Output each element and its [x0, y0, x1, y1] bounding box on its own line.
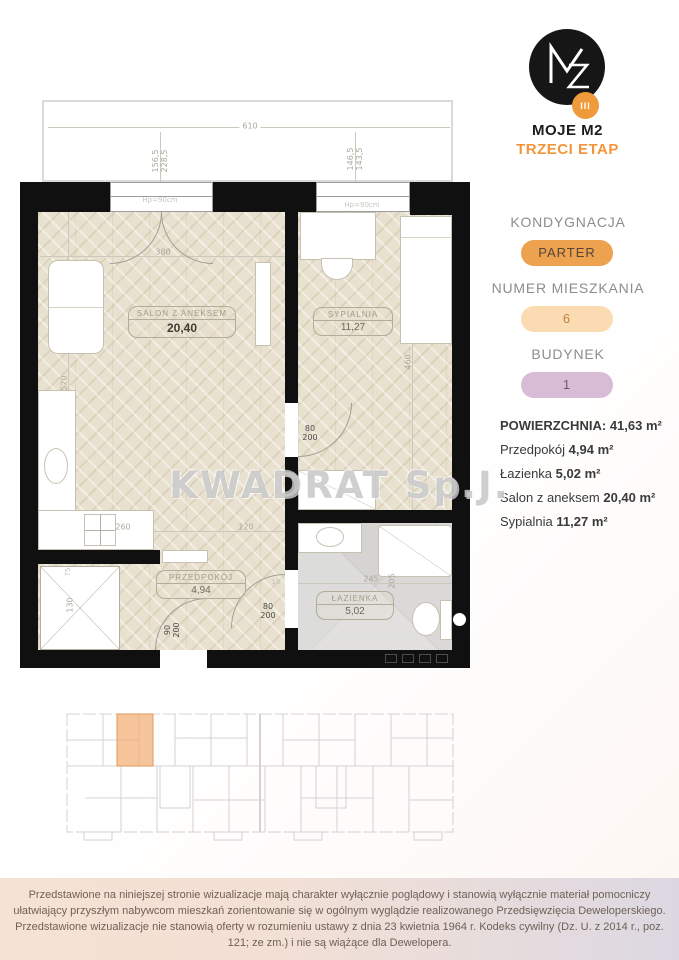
shaft-wardrobe	[40, 566, 120, 650]
vent-grille-4	[436, 654, 448, 663]
dim-window-left: 156,5 228,5	[151, 150, 169, 173]
wall-bathroom	[285, 510, 452, 523]
room-area-line: Sypialnia 11,27 m²	[500, 514, 670, 529]
dim-salon-width: 380	[155, 247, 170, 256]
watermark: KWADRAT Sp.J.	[0, 464, 679, 507]
brand-name: MOJE M2	[490, 122, 645, 139]
hall-cabinet	[162, 550, 208, 563]
dim-door-bedroom: 80 200	[302, 424, 317, 442]
room-area-living: 20,40	[129, 320, 235, 337]
disclaimer-footer: Przedstawione na niniejszej stronie wizu…	[0, 878, 679, 960]
room-label-bedroom: SYPIALNIA 11,27	[313, 307, 393, 336]
floor-value-pill: PARTER	[521, 240, 613, 266]
logo-badge-text: III	[580, 101, 591, 111]
apartment-value-pill: 6	[521, 306, 613, 332]
dim-hall-width: 120	[238, 522, 253, 531]
dim-small: 10	[272, 578, 281, 586]
wall-left	[20, 182, 38, 668]
room-area-value: 4,94 m²	[569, 442, 614, 457]
logo-stage-badge: III	[572, 92, 599, 119]
stove	[84, 514, 116, 546]
dim-hp-left: Hp=90cm	[142, 196, 177, 204]
flyer-page: 610 156,5 228,5 146,5 143,5	[0, 0, 679, 960]
room-area-name: Przedpokój	[500, 442, 565, 457]
wall-partition-lower	[285, 628, 298, 650]
tv-cabinet	[255, 262, 271, 346]
room-area-name: Sypialnia	[500, 514, 553, 529]
wall-partition-upper	[285, 212, 298, 403]
room-name-bathroom: ŁAZIENKA	[317, 592, 393, 605]
balcony-outline	[42, 100, 453, 182]
total-area-value: 41,63 m²	[610, 418, 662, 433]
washbasin	[316, 527, 344, 547]
room-name-living: SALON Z ANEKSEM	[129, 307, 235, 320]
dim-door-bathroom: 80 200	[260, 602, 275, 620]
wall-bottom-left	[20, 650, 160, 668]
wall-hall-stub	[38, 550, 160, 564]
toilet-bowl	[412, 602, 440, 636]
room-label-hall: PRZEDPOKÓJ 4,94	[156, 570, 246, 599]
dim-bath-width: 245	[363, 574, 378, 583]
wall-right	[452, 182, 470, 668]
dim-shaft-width: 75	[64, 568, 72, 577]
toilet-tank	[440, 600, 452, 640]
building-label: BUDYNEK	[478, 346, 658, 362]
dim-kitchen-width: 260	[115, 522, 130, 531]
room-area-bedroom: 11,27	[314, 321, 392, 335]
room-area-value: 11,27 m²	[556, 514, 607, 529]
dim-window-right: 146,5 143,5	[346, 148, 364, 171]
building-overview-plan	[64, 698, 458, 848]
total-area-label: POWIERZCHNIA	[500, 418, 602, 433]
total-area-line: POWIERZCHNIA: 41,63 m²	[500, 418, 670, 433]
building-value-pill: 1	[521, 372, 613, 398]
desk	[300, 212, 376, 260]
shower	[378, 525, 452, 577]
dim-door-entrance: 90 200	[163, 622, 181, 637]
room-label-living: SALON Z ANEKSEM 20,40	[128, 306, 236, 338]
room-area-bathroom: 5,02	[317, 605, 393, 619]
room-area-hall: 4,94	[157, 584, 245, 598]
vent-grille-1	[385, 654, 397, 663]
total-area-colon: :	[602, 418, 606, 433]
wall-top-middle	[213, 182, 316, 212]
vent-grille-2	[402, 654, 414, 663]
room-label-bathroom: ŁAZIENKA 5,02	[316, 591, 394, 620]
floor-label: KONDYGNACJA	[478, 214, 658, 230]
sofa	[48, 260, 104, 354]
disclaimer-text: Przedstawione na niniejszej stronie wizu…	[0, 887, 679, 951]
dim-hp-right: Hp=90cm	[344, 201, 379, 209]
dim-bedroom-height: 460	[403, 354, 412, 369]
highlighted-unit	[117, 714, 153, 766]
dim-salon-height: 520	[59, 375, 68, 390]
bed	[400, 216, 452, 344]
dim-bath-height: 205	[387, 573, 396, 588]
room-name-bedroom: SYPIALNIA	[314, 308, 392, 321]
logo-monogram-icon	[529, 29, 605, 105]
logo-circle	[529, 29, 605, 105]
wall-peephole-dot	[453, 613, 466, 626]
dim-total-width: 610	[239, 121, 260, 130]
room-name-hall: PRZEDPOKÓJ	[157, 571, 245, 584]
vent-grille-3	[419, 654, 431, 663]
apartment-label: NUMER MIESZKANIA	[478, 280, 658, 296]
dim-shaft-height: 130	[65, 597, 74, 612]
room-area-line: Przedpokój 4,94 m²	[500, 442, 670, 457]
stage-name: TRZECI ETAP	[490, 141, 645, 158]
